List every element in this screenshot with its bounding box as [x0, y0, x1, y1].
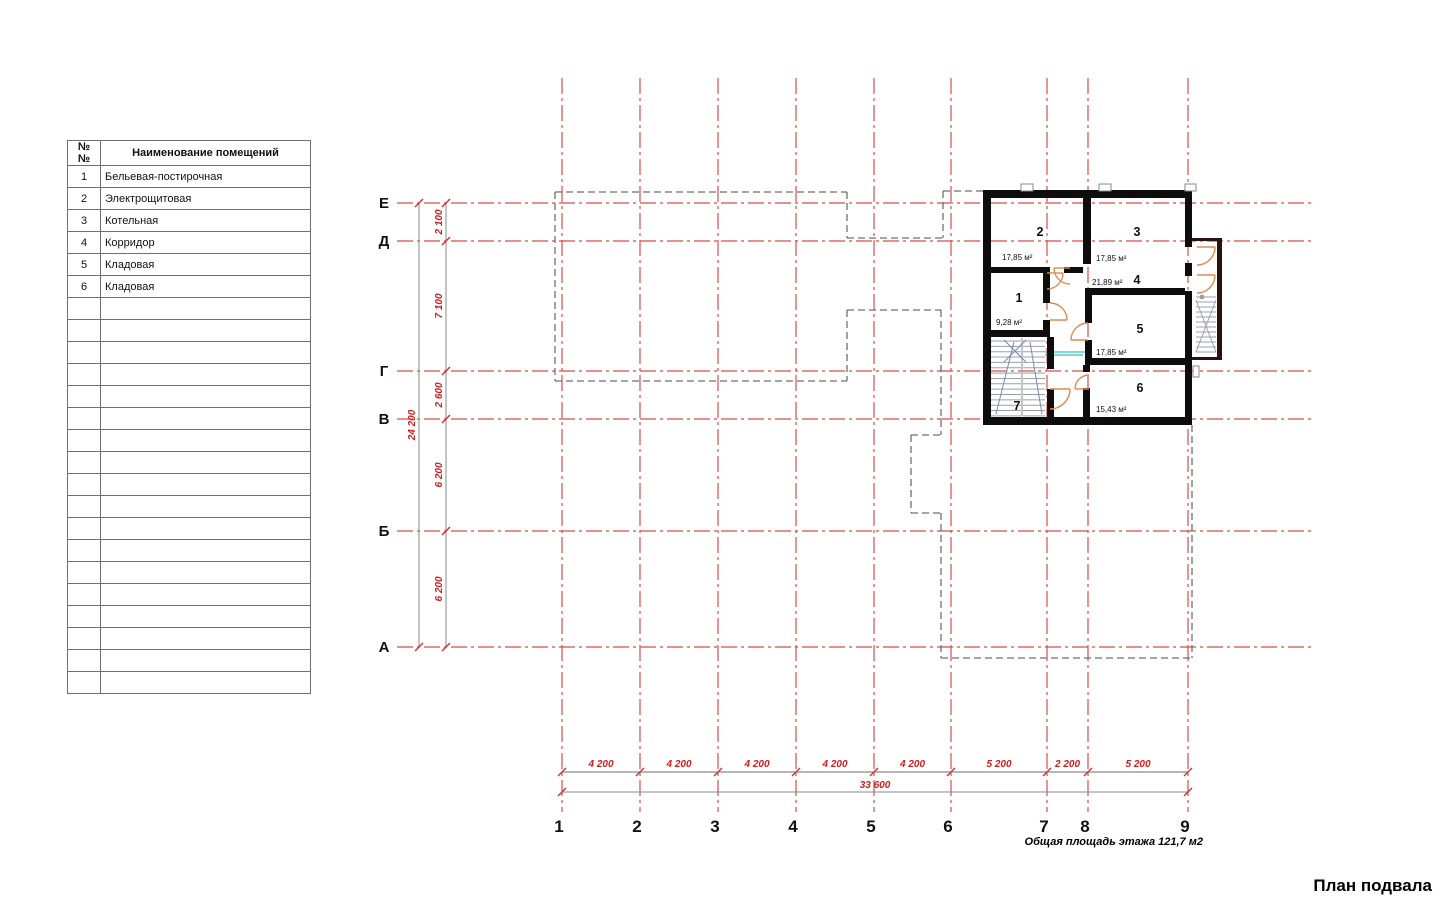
dim-text-vertical: 6 200 [434, 462, 445, 487]
dim-text-horizontal: 4 200 [665, 759, 691, 770]
grid-axis-number-label: 4 [788, 817, 798, 836]
door-swing-arc [1075, 375, 1089, 389]
grid-axis-number-label: 2 [632, 817, 641, 836]
wall [983, 190, 991, 425]
door-swing-arc [1050, 303, 1067, 320]
room-number-label: 3 [1134, 225, 1141, 239]
room-area-label: 15,43 м² [1096, 405, 1127, 414]
room-area-label: 17,85 м² [1096, 348, 1127, 357]
dim-text-horizontal: 4 200 [821, 759, 847, 770]
room-number-label: 2 [1037, 225, 1044, 239]
grid-axis-letter-label: Г [380, 363, 389, 380]
grid-axis-number-label: 3 [710, 817, 719, 836]
grid-axis-letter-label: Б [379, 523, 390, 540]
dim-text-vertical: 7 100 [434, 293, 445, 318]
dim-text-horizontal: 4 200 [899, 759, 925, 770]
exterior-stair-wall [1192, 238, 1220, 241]
room-area-label: 17,85 м² [1096, 254, 1127, 263]
wall [1083, 365, 1090, 372]
exterior-stair-wall [1217, 238, 1222, 360]
grid-axis-number-label: 9 [1180, 817, 1189, 836]
total-area-label: Общая площадь этажа 121,7 м2 [1025, 836, 1203, 848]
room-number-label: 5 [1137, 322, 1144, 336]
dim-text-horizontal: 4 200 [587, 759, 613, 770]
grid-axis-letter-label: Е [379, 195, 389, 212]
grid-axis-number-label: 1 [554, 817, 563, 836]
grid-axis-number-label: 8 [1080, 817, 1089, 836]
room-area-label: 21,89 м² [1092, 278, 1123, 287]
wall [1185, 263, 1192, 276]
dim-text-horizontal: 5 200 [1125, 759, 1150, 770]
dim-text-vertical-total: 24 200 [407, 409, 418, 441]
grid-axis-letter-label: А [379, 639, 390, 656]
plan-title: План подвала [1313, 876, 1432, 896]
wall [983, 190, 1192, 198]
dim-text-horizontal: 4 200 [743, 759, 769, 770]
door-swing-arc [1197, 275, 1215, 293]
room-number-label: 6 [1137, 381, 1144, 395]
exterior-stair-wall [1192, 357, 1220, 360]
wall [1083, 388, 1090, 425]
room-area-label: 9,28 м² [996, 318, 1022, 327]
dim-text-vertical: 2 600 [434, 382, 445, 408]
wall [983, 330, 1050, 337]
wall [983, 267, 1046, 273]
dim-text-vertical: 2 100 [434, 209, 445, 235]
floor-plan-drawing: 123456789ЕДГВБА2 1007 1002 6006 2006 200… [0, 0, 1440, 901]
window-marker [1099, 184, 1111, 191]
wall [1085, 288, 1092, 323]
wall [1083, 198, 1091, 264]
grid-axis-letter-label: Д [379, 233, 390, 250]
room-area-label: 17,85 м² [1002, 253, 1033, 262]
blueprint-page: №№ Наименование помещений 1Бельевая-пост… [0, 0, 1440, 901]
room-number-label: 7 [1014, 399, 1021, 413]
room-number-label: 1 [1016, 291, 1023, 305]
room-number-label: 4 [1134, 273, 1141, 287]
wall [1185, 190, 1192, 247]
grid-axis-number-label: 5 [866, 817, 875, 836]
exterior-stair-post-dot [1200, 295, 1205, 300]
grid-axis-letter-label: В [379, 411, 390, 428]
door-swing-arc [1197, 247, 1215, 265]
wall [1047, 337, 1054, 369]
door-swing-arc [1071, 323, 1088, 340]
wall [1047, 389, 1054, 425]
window-marker [1185, 184, 1196, 191]
dim-text-horizontal-total: 33 600 [860, 780, 891, 791]
dim-text-vertical: 6 200 [434, 576, 445, 601]
grid-axis-number-label: 6 [943, 817, 952, 836]
grid-axis-number-label: 7 [1039, 817, 1048, 836]
wall [1090, 288, 1185, 295]
dim-text-horizontal: 2 200 [1054, 759, 1080, 770]
window-marker [1021, 184, 1033, 191]
window-marker [1193, 366, 1199, 377]
dim-text-horizontal: 5 200 [986, 759, 1011, 770]
wall [1085, 358, 1192, 365]
